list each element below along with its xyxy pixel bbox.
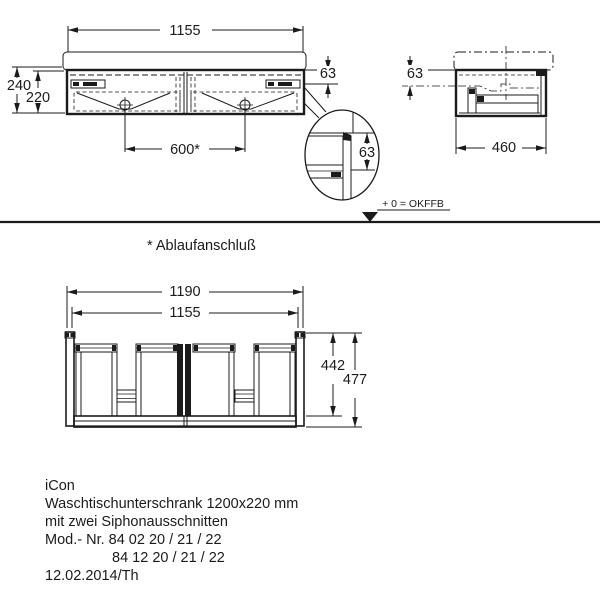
dim-side-overhang: 63 [402, 56, 456, 100]
detail-circle-view: 63 [302, 107, 379, 200]
side-section-view: 63 460 [402, 46, 553, 156]
title-description: Waschtischunterschrank 1200x220 mm [45, 496, 298, 512]
washbasin-front-outline [63, 52, 306, 70]
dim-detail-offset: 63 [351, 133, 375, 170]
dim-bottom-depths: 442 477 [306, 333, 367, 427]
dim-height-cabinet-label: 220 [26, 90, 50, 106]
panel-section-hatch [343, 136, 351, 200]
title-date: 12.02.2014/Th [45, 568, 139, 584]
dim-front-overhang: 63 [304, 56, 340, 98]
dim-bottom-width-body-label: 1155 [169, 305, 200, 321]
washbasin-side-outline [454, 52, 553, 70]
bottom-plan-view: 1190 1155 [65, 284, 367, 427]
level-marker-icon [362, 212, 378, 222]
detail-leader-lines [304, 87, 326, 118]
title-series: iCon [45, 478, 75, 494]
dim-detail-offset-label: 63 [359, 145, 375, 161]
drawer-handle-left [71, 80, 105, 88]
dim-bottom-width-overall-label: 1190 [169, 284, 200, 300]
dim-depth-body-label: 442 [321, 358, 345, 374]
dim-bottom-width-body: 1155 [72, 305, 298, 328]
siphon-cutout-bridge-right [235, 390, 254, 402]
level-marker-label: + 0 = OKFFB [382, 198, 444, 210]
title-model-numbers-1: Mod.- Nr. 84 02 20 / 21 / 22 [45, 532, 222, 548]
drawer-walls [76, 344, 295, 416]
footnote-ablaufanschluss: * Ablaufanschluß [147, 238, 256, 254]
dim-depth-overall-label: 477 [343, 372, 367, 388]
dim-front-width: 1155 [68, 23, 303, 52]
ground-level-line: + 0 = OKFFB [0, 198, 600, 222]
front-elevation-view: 1155 240 220 63 600* [7, 23, 340, 158]
technical-drawing-canvas: 1155 240 220 63 600* [0, 0, 600, 600]
dim-side-overhang-label: 63 [407, 66, 423, 82]
drawer-rail-section [302, 165, 343, 178]
title-model-numbers-2: 84 12 20 / 21 / 22 [112, 550, 225, 566]
washbasin-section-hatch [303, 107, 353, 133]
dim-drain-spacing: 600* [125, 110, 245, 158]
title-variant: mit zwei Siphonausschnitten [45, 514, 228, 530]
dim-front-heights: 240 220 [7, 67, 65, 113]
title-block: iCon Waschtischunterschrank 1200x220 mm … [45, 478, 298, 584]
dim-drain-spacing-label: 600* [170, 142, 200, 158]
dim-front-overhang-label: 63 [320, 66, 336, 82]
dim-front-width-label: 1155 [169, 23, 200, 39]
dim-side-depth-label: 460 [492, 140, 516, 156]
siphon-cutout-bridge-left [117, 390, 136, 402]
bottom-front-band [74, 416, 296, 427]
drawer-handle-right [266, 80, 300, 88]
side-panel-left [65, 332, 75, 426]
dim-side-depth: 460 [456, 118, 546, 156]
drawer-side-profile [459, 88, 540, 113]
